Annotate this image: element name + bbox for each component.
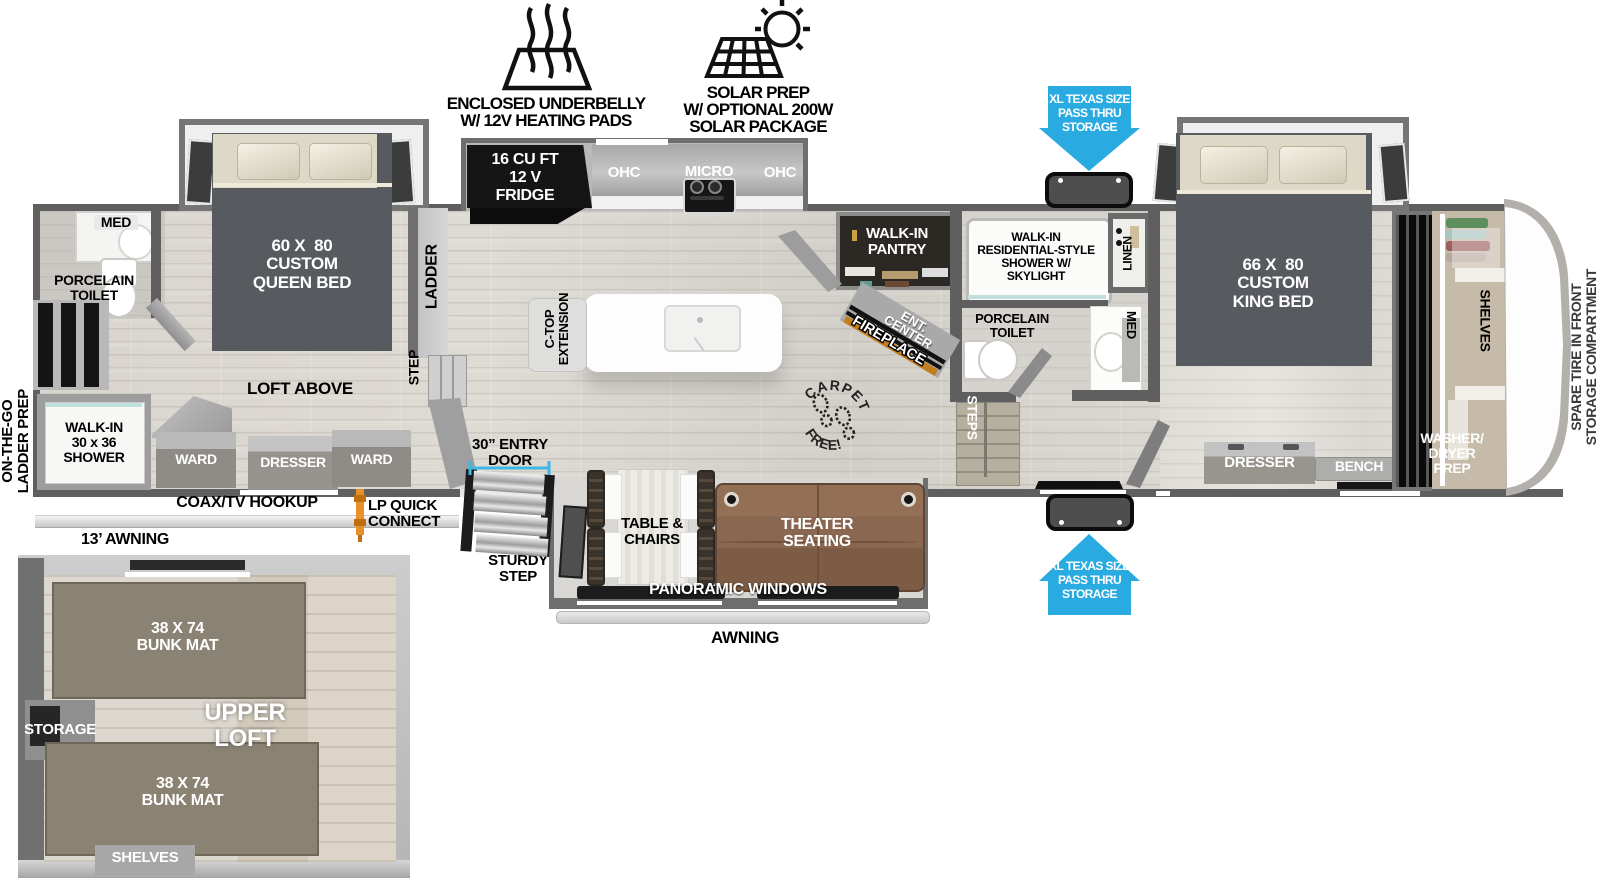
svg-text:FREE!: FREE! xyxy=(799,423,848,457)
svg-text:CARPET: CARPET xyxy=(799,368,879,419)
